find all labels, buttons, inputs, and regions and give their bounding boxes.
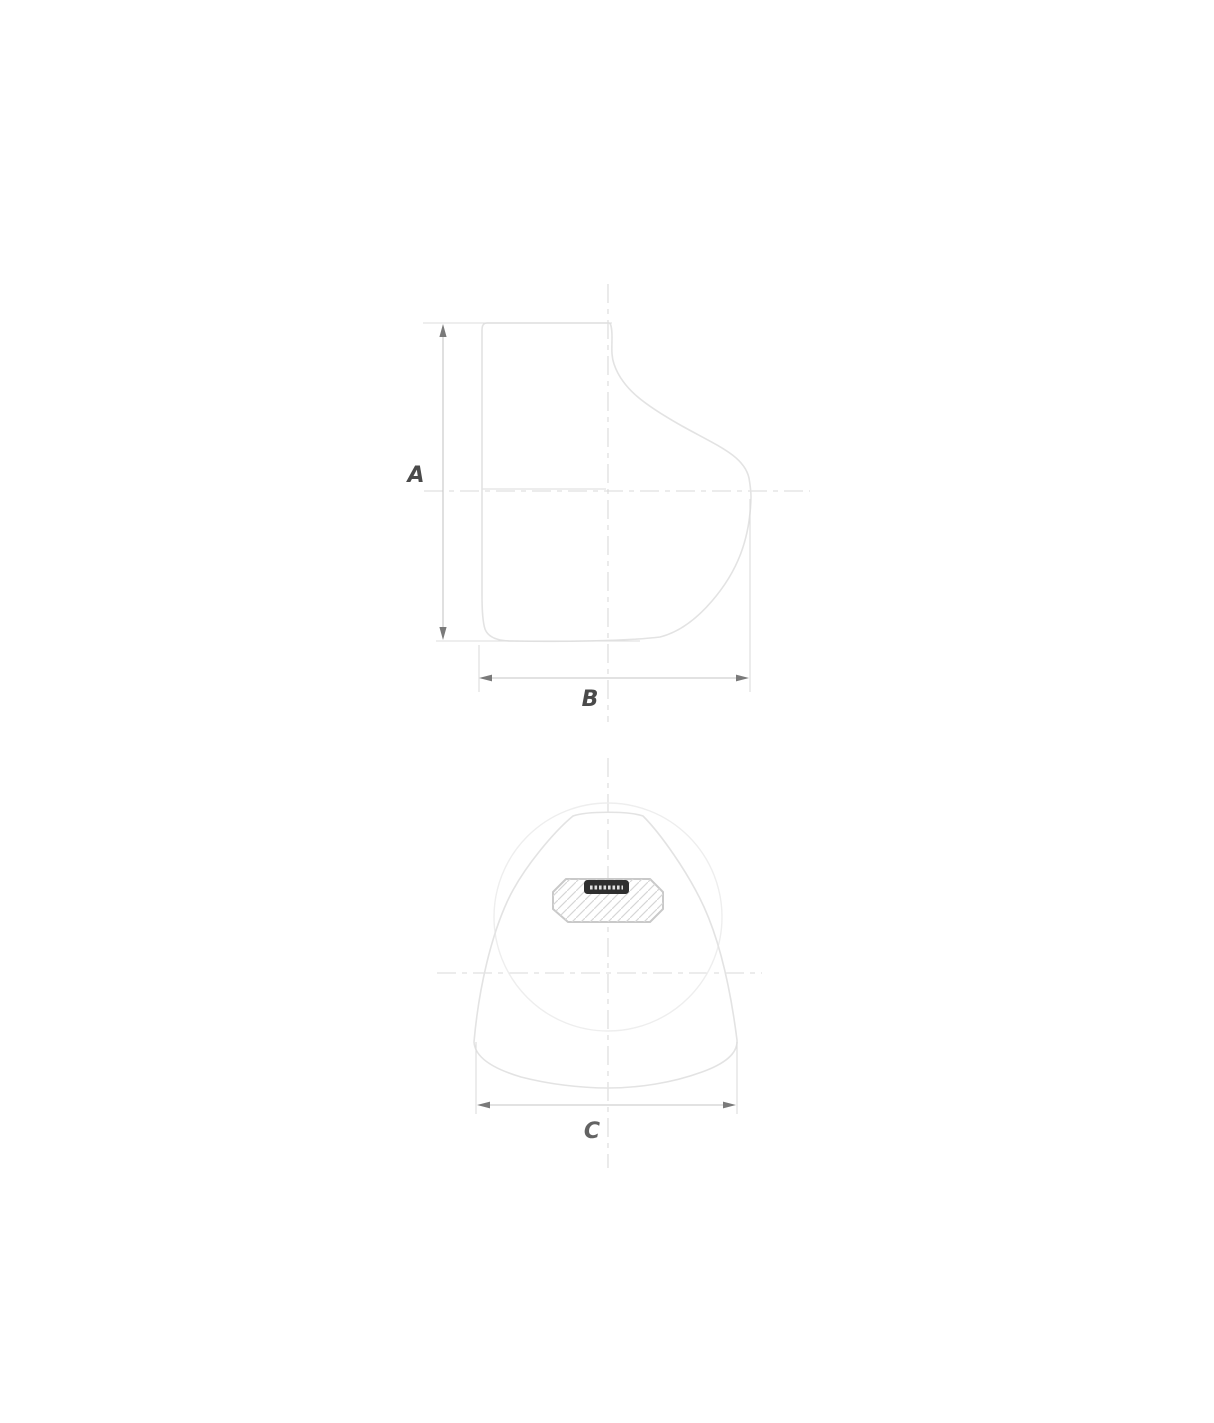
side-view: A B bbox=[405, 284, 810, 722]
badge bbox=[553, 879, 663, 922]
dimension-c-arrow-right-icon bbox=[723, 1102, 736, 1109]
front-view: C bbox=[437, 758, 762, 1168]
side-view-outline bbox=[482, 323, 751, 641]
dimension-b-arrow-right-icon bbox=[736, 675, 749, 682]
dimension-c-arrow-left-icon bbox=[477, 1102, 490, 1109]
drawing-canvas: A B bbox=[0, 0, 1214, 1423]
dimension-b-label: B bbox=[582, 687, 599, 712]
winch-cover-dimension-drawing: A B bbox=[0, 0, 1214, 1423]
dimension-a-arrow-up-icon bbox=[439, 324, 446, 337]
dimension-c-label: C bbox=[584, 1119, 600, 1144]
dimension-a-arrow-down-icon bbox=[439, 627, 446, 640]
dimension-b-arrow-left-icon bbox=[479, 675, 492, 682]
dimension-a-label: A bbox=[405, 463, 424, 488]
